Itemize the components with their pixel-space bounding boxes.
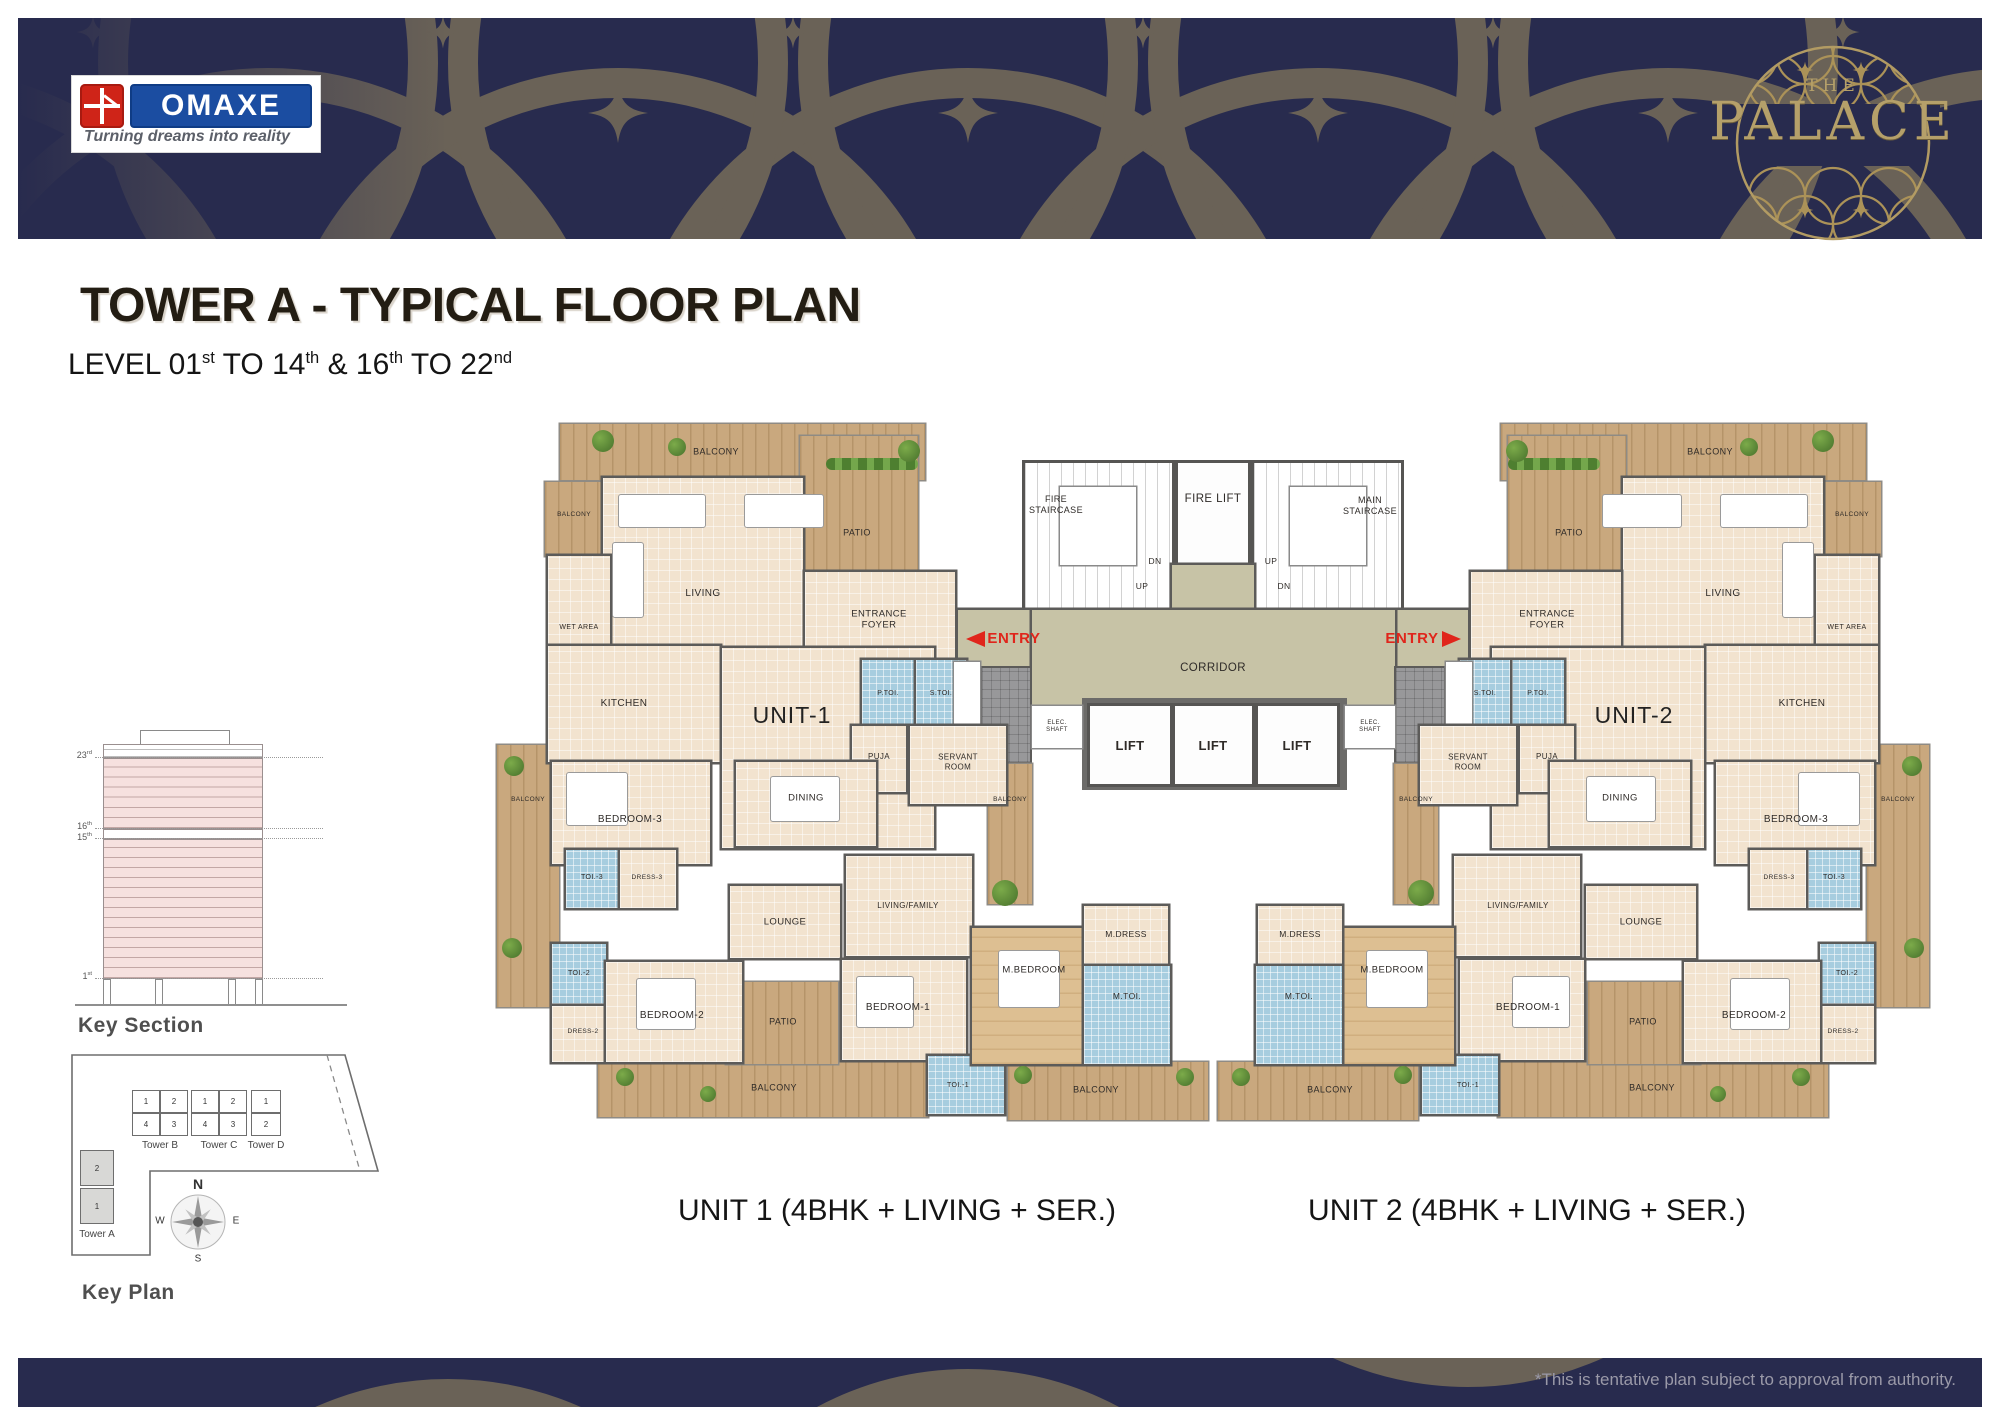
balcony-top-label: BALCONY <box>1687 447 1733 458</box>
elec-shaft-left-label: ELEC. SHAFT <box>1046 720 1068 734</box>
patio-upper-label: PATIO <box>1555 528 1583 539</box>
disclaimer-text: *This is tentative plan subject to appro… <box>1535 1370 1956 1390</box>
unit-hall-label: UNIT-2 <box>1595 702 1674 730</box>
balcony-side-label: BALCONY <box>1881 796 1915 804</box>
main-staircase-label-label: MAIN STAIRCASE <box>1343 495 1397 517</box>
dn-label-label: DN <box>1277 581 1290 591</box>
balcony-bottom-label: BALCONY <box>751 1083 797 1094</box>
kitchen-label: KITCHEN <box>1779 698 1826 710</box>
p-toi-label: P.TOI. <box>1527 690 1549 698</box>
dress-3-label: DRESS-3 <box>1764 874 1795 882</box>
dress-2-label: DRESS-2 <box>1828 1028 1859 1036</box>
toi-2-label: TOI.-2 <box>568 970 590 978</box>
brochure-page: OMAXE Turning dreams into reality <box>0 0 2000 1414</box>
lift-3-label: LIFT <box>1282 738 1311 754</box>
unit-hall-label: UNIT-1 <box>753 702 832 730</box>
balcony-bottom-label: BALCONY <box>1629 1083 1675 1094</box>
balcony-core-right-label: BALCONY <box>1399 796 1433 804</box>
living-label: LIVING <box>685 588 720 600</box>
patio-lower-label: PATIO <box>769 1017 797 1028</box>
fire-lift-label-label: FIRE LIFT <box>1185 493 1242 507</box>
entry-label-left-label: ENTRY <box>987 630 1040 648</box>
puja-label: PUJA <box>1536 752 1558 762</box>
living-label: LIVING <box>1705 588 1740 600</box>
bedroom-3-label: BEDROOM-3 <box>598 814 662 826</box>
toi-3-label: TOI.-3 <box>1823 874 1845 882</box>
unit2-caption: UNIT 2 (4BHK + LIVING + SER.) <box>1277 1194 1777 1228</box>
elec-shaft-right-label: ELEC. SHAFT <box>1359 720 1381 734</box>
s-toi-label: S.TOI. <box>930 690 953 698</box>
balcony-upper-side-label: BALCONY <box>557 511 591 519</box>
balcony-core-left-label: BALCONY <box>993 796 1027 804</box>
puja-label: PUJA <box>868 752 890 762</box>
bedroom-2-label: BEDROOM-2 <box>1722 1010 1786 1022</box>
m-dress-label: M.DRESS <box>1105 929 1147 939</box>
balcony-upper-side-label: BALCONY <box>1835 511 1869 519</box>
servant-room-label: SERVANT ROOM <box>1448 752 1488 771</box>
bedroom-1-label: BEDROOM-1 <box>1496 1002 1560 1014</box>
entry-label-right-label: ENTRY <box>1385 630 1438 648</box>
up-label-label: UP <box>1265 556 1278 566</box>
balcony-side-label: BALCONY <box>511 796 545 804</box>
s-toi-label: S.TOI. <box>1474 690 1497 698</box>
patio-lower-label: PATIO <box>1629 1017 1657 1028</box>
entrance-foyer-label: ENTRANCE FOYER <box>851 609 906 632</box>
lounge-label: LOUNGE <box>1620 916 1663 927</box>
bedroom-2-label: BEDROOM-2 <box>640 1010 704 1022</box>
dress-2-label: DRESS-2 <box>568 1028 599 1036</box>
bedroom-3-label: BEDROOM-3 <box>1764 814 1828 826</box>
kitchen-label: KITCHEN <box>601 698 648 710</box>
living-family-label: LIVING/FAMILY <box>877 901 939 911</box>
living-family-label: LIVING/FAMILY <box>1487 901 1549 911</box>
balcony-bottom-inner-label: BALCONY <box>1073 1085 1119 1096</box>
wet-area-label: WET AREA <box>559 624 598 632</box>
m-toi-label: M.TOI. <box>1285 991 1313 1001</box>
dining-label: DINING <box>1602 792 1638 803</box>
corridor-label-label: CORRIDOR <box>1180 662 1246 676</box>
bedroom-1-label: BEDROOM-1 <box>866 1002 930 1014</box>
dining-label: DINING <box>788 792 824 803</box>
toi-1-label: TOI.-1 <box>1457 1082 1479 1090</box>
dn-label-label: DN <box>1148 556 1161 566</box>
lounge-label: LOUNGE <box>764 916 807 927</box>
fire-staircase-label-label: FIRE STAIRCASE <box>1029 494 1083 516</box>
m-bedroom-label: M.BEDROOM <box>1002 964 1065 975</box>
m-toi-label: M.TOI. <box>1113 991 1141 1001</box>
dress-3-label: DRESS-3 <box>632 874 663 882</box>
wet-area-label: WET AREA <box>1827 624 1866 632</box>
balcony-top-label: BALCONY <box>693 447 739 458</box>
up-label-label: UP <box>1136 581 1149 591</box>
m-dress-label: M.DRESS <box>1279 929 1321 939</box>
patio-upper-label: PATIO <box>843 528 871 539</box>
toi-3-label: TOI.-3 <box>581 874 603 882</box>
servant-room-label: SERVANT ROOM <box>938 752 978 771</box>
unit1-caption: UNIT 1 (4BHK + LIVING + SER.) <box>647 1194 1147 1228</box>
m-bedroom-label: M.BEDROOM <box>1360 964 1423 975</box>
toi-2-label: TOI.-2 <box>1836 970 1858 978</box>
lift-1-label: LIFT <box>1115 738 1144 754</box>
toi-1-label: TOI.-1 <box>947 1082 969 1090</box>
entrance-foyer-label: ENTRANCE FOYER <box>1519 609 1574 632</box>
balcony-bottom-inner-label: BALCONY <box>1307 1085 1353 1096</box>
p-toi-label: P.TOI. <box>877 690 899 698</box>
lift-2-label: LIFT <box>1198 738 1227 754</box>
